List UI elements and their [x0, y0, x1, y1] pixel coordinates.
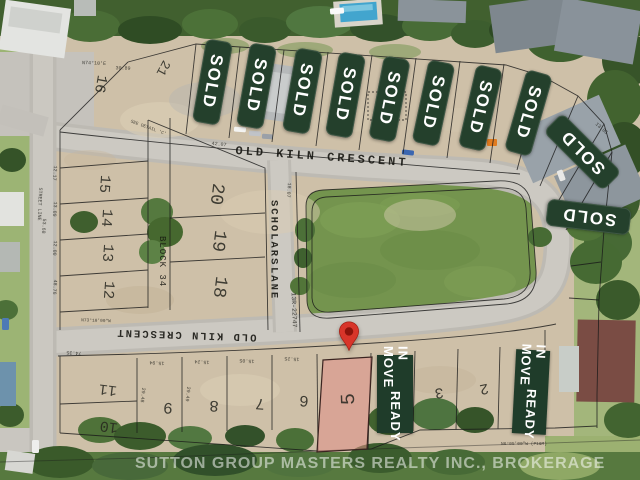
lot-number-16: 16	[91, 74, 109, 94]
lot-number-15: 15	[96, 174, 112, 193]
move-in-ready-banner: MOVE IN READY	[512, 349, 550, 435]
survey-label: 15.25	[284, 355, 299, 361]
lot-number-18: 18	[209, 275, 229, 299]
move-in-ready-text: MOVE IN	[517, 343, 548, 387]
lot-number-13: 13	[99, 243, 115, 262]
survey-label: 74.35	[66, 349, 81, 355]
survey-label: N6°05'00"W (P1&M)	[501, 443, 547, 448]
plan-ref-label: 13R-22747	[289, 292, 297, 327]
move-in-ready-text: MOVE IN	[381, 346, 410, 388]
swimming-pool	[333, 0, 383, 28]
brokerage-watermark: SUTTON GROUP MASTERS REALTY INC., BROKER…	[135, 455, 575, 473]
lot-number-5: 5	[340, 393, 360, 406]
survey-label: N74°10'E	[82, 61, 106, 67]
lot-number-10: 10	[99, 417, 119, 434]
survey-label: 15.24	[194, 358, 209, 364]
move-in-ready-text: READY	[388, 391, 402, 442]
survey-label: 30.89	[115, 66, 130, 72]
lot-number-14: 14	[98, 208, 114, 227]
lot-number-7: 7	[255, 395, 266, 412]
survey-label: 12.00	[51, 240, 57, 255]
survey-label: 29.49	[184, 386, 191, 401]
lot-number-9: 9	[163, 399, 174, 416]
survey-label: 15.05	[239, 357, 254, 363]
aerial-photo: OLD KILN CRESCENT OLD KILN CRESCENT SCHO…	[0, 0, 640, 480]
street-label-scholars-lane: SCHOLARS LANE	[268, 200, 279, 292]
lane-line: LANE	[268, 267, 279, 300]
survey-label: 15.94	[149, 359, 164, 365]
survey-label: 13.09	[51, 201, 57, 216]
move-in-ready-banner: MOVE IN READY	[377, 355, 413, 433]
scholars-line: SCHOLARS	[268, 200, 279, 266]
location-pin-icon	[338, 320, 360, 353]
lot-number-3: 3	[433, 384, 444, 400]
street-line-label: STREET LINE	[36, 187, 42, 220]
survey-label: 53.68	[40, 218, 46, 233]
lot-number-12: 12	[100, 280, 116, 299]
lot-number-19: 19	[208, 229, 228, 253]
lot-number-8: 8	[209, 397, 220, 414]
lot-number-11: 11	[98, 380, 118, 397]
lot-number-20: 20	[206, 182, 226, 206]
survey-label: 48.76	[51, 279, 57, 294]
hedge-bottom	[78, 398, 494, 452]
block-34-label: BLOCK 34	[157, 236, 166, 287]
survey-label: 29.48	[139, 387, 146, 402]
survey-label: 12.17	[51, 165, 57, 180]
lot-number-6: 6	[299, 392, 310, 409]
move-in-ready-text: READY	[521, 389, 538, 440]
survey-label: 18.07	[285, 182, 291, 197]
